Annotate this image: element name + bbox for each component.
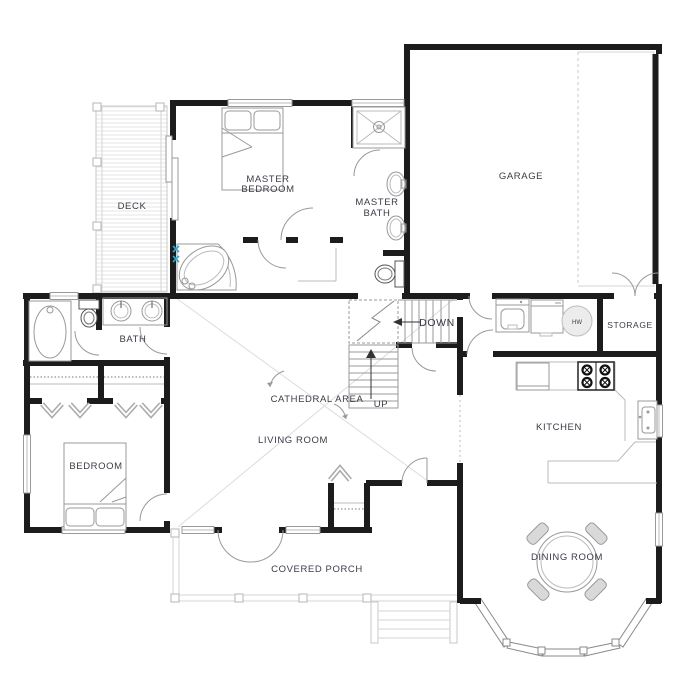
floor-plan-canvas: HW xyxy=(0,0,700,700)
room-label-master-bath-2: BATH xyxy=(363,208,390,219)
dryer-icon xyxy=(531,300,563,336)
kitchen-sink-icon xyxy=(638,401,657,439)
garage-door xyxy=(578,52,654,286)
window xyxy=(286,527,320,534)
water-heater-icon: HW xyxy=(562,306,592,336)
window xyxy=(50,293,78,300)
door-swing xyxy=(469,296,492,319)
sliding-door xyxy=(166,136,178,220)
window xyxy=(228,100,292,107)
room-label-cathedral-area: CATHEDRAL AREA xyxy=(271,394,364,405)
room-label-storage: STORAGE xyxy=(607,320,653,330)
door-swing xyxy=(412,348,436,371)
toilet-icon xyxy=(79,300,99,327)
room-label-kitchen: KITCHEN xyxy=(536,422,582,433)
deck-structure xyxy=(93,103,167,293)
covered-porch-structure xyxy=(171,529,458,643)
room-label-master-bath-1: MASTER xyxy=(355,197,398,208)
door-swing xyxy=(467,330,493,354)
bay-window xyxy=(475,599,652,656)
window xyxy=(24,435,31,493)
door-swing xyxy=(218,530,283,562)
washer-icon xyxy=(496,299,529,332)
room-label-master-bedroom-2: BEDROOM xyxy=(241,184,294,195)
bed-icon xyxy=(64,443,126,530)
corner-tub-icon xyxy=(171,237,237,299)
cathedral-ceiling-lines xyxy=(176,298,460,527)
door-swing xyxy=(281,208,313,240)
room-label-bedroom: BEDROOM xyxy=(69,461,122,472)
vanity-double-sink-icon xyxy=(103,298,167,325)
door-swing xyxy=(402,458,427,483)
window xyxy=(182,527,214,534)
bifold-door-chevrons xyxy=(42,404,161,415)
stairs-down-label: DOWN xyxy=(419,317,455,329)
room-label-garage: GARAGE xyxy=(499,171,543,182)
water-heater-label: HW xyxy=(572,320,582,326)
shower-icon xyxy=(353,107,405,148)
room-label-living-room: LIVING ROOM xyxy=(258,435,328,446)
room-label-bath: BATH xyxy=(119,334,146,345)
door-swing xyxy=(258,240,286,268)
floor-plan-drawing: HW xyxy=(0,0,700,700)
bathtub-icon xyxy=(29,301,71,361)
room-label-dining-room: DINING ROOM xyxy=(531,552,603,563)
door-swing xyxy=(140,494,167,521)
closet-rods xyxy=(30,377,164,384)
window xyxy=(656,513,663,546)
door-swing xyxy=(354,150,380,176)
fridge-icon xyxy=(517,363,549,390)
door-swing xyxy=(75,331,99,355)
room-label-deck: DECK xyxy=(118,201,147,212)
window xyxy=(352,100,404,107)
porch-steps xyxy=(371,602,457,643)
stove-icon xyxy=(578,362,614,390)
toilet-icon xyxy=(375,261,404,287)
room-label-covered-porch: COVERED PORCH xyxy=(271,564,363,575)
stairs-up-label: UP xyxy=(374,399,388,410)
living-room-closet xyxy=(330,468,364,509)
closet-shelf-lines xyxy=(298,248,336,281)
door-swing xyxy=(612,273,658,296)
